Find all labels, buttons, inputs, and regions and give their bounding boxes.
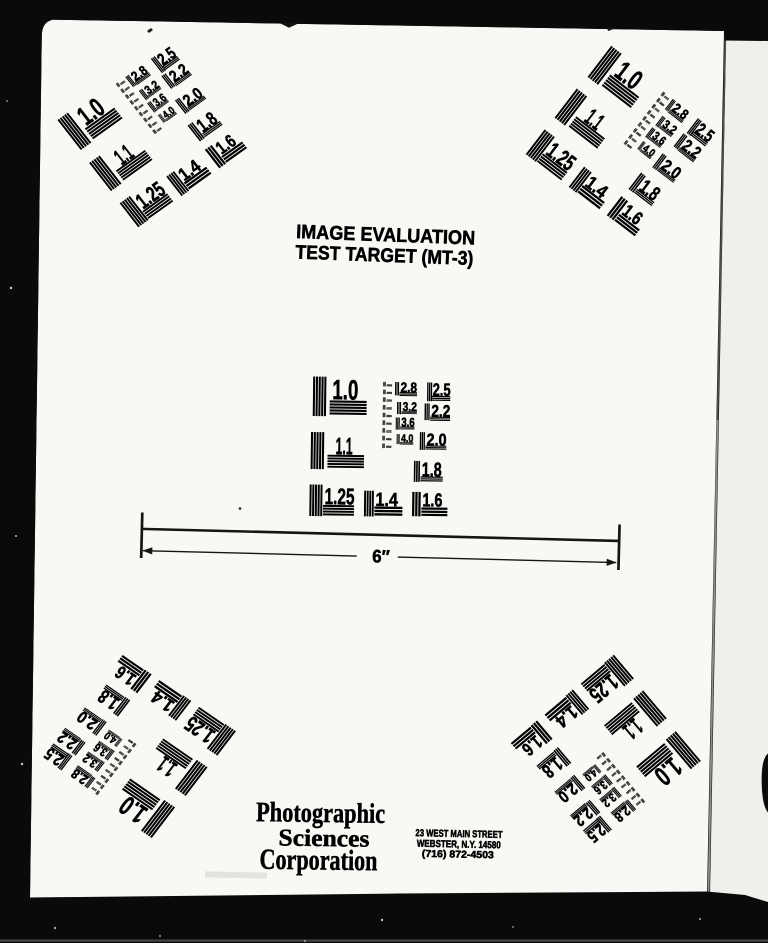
svg-text:6″: 6″ — [372, 546, 390, 566]
svg-text:Corporation: Corporation — [259, 844, 377, 878]
svg-text:Photographic: Photographic — [256, 797, 385, 830]
svg-text:(716) 872-4503: (716) 872-4503 — [422, 849, 495, 862]
